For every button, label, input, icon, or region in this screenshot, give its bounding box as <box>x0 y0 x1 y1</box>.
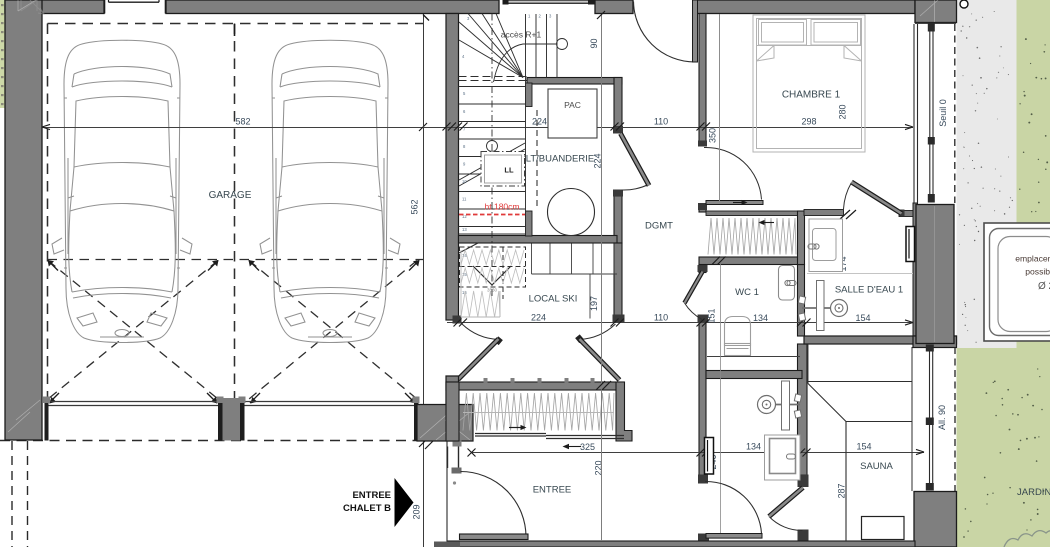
svg-text:accès R+1: accès R+1 <box>501 30 542 40</box>
svg-text:Seuil 0: Seuil 0 <box>938 99 948 127</box>
svg-text:All. 90: All. 90 <box>937 405 947 430</box>
svg-text:209: 209 <box>412 504 422 519</box>
svg-text:151: 151 <box>707 308 717 323</box>
svg-text:287: 287 <box>837 483 847 498</box>
svg-text:ENTREE: ENTREE <box>352 490 391 501</box>
svg-text:197: 197 <box>589 296 599 311</box>
svg-text:emplacement: emplacement <box>1015 254 1050 264</box>
svg-text:134: 134 <box>753 313 768 323</box>
svg-text:ht 180cm: ht 180cm <box>485 202 520 212</box>
svg-text:possible: possible <box>1025 267 1050 277</box>
svg-text:JARDIN: JARDIN <box>1017 487 1050 498</box>
svg-text:WC 1: WC 1 <box>735 287 759 298</box>
svg-text:PAC: PAC <box>564 100 581 110</box>
svg-text:280: 280 <box>838 104 848 119</box>
svg-text:CHALET B: CHALET B <box>343 503 391 514</box>
svg-text:13: 13 <box>462 227 467 232</box>
svg-text:DGMT: DGMT <box>645 221 673 232</box>
svg-text:110: 110 <box>654 117 668 127</box>
svg-text:CHAMBRE 1: CHAMBRE 1 <box>782 90 841 101</box>
svg-text:90: 90 <box>589 38 599 48</box>
svg-text:11: 11 <box>462 197 467 202</box>
svg-text:298: 298 <box>801 117 816 127</box>
svg-text:SALLE D'EAU 1: SALLE D'EAU 1 <box>835 285 903 296</box>
svg-text:LOCAL SKI: LOCAL SKI <box>529 294 578 305</box>
svg-text:562: 562 <box>410 199 420 214</box>
svg-text:10: 10 <box>462 179 467 184</box>
svg-text:SAUNA: SAUNA <box>860 461 893 472</box>
svg-text:154: 154 <box>855 313 870 323</box>
svg-text:350: 350 <box>708 128 718 143</box>
svg-text:325: 325 <box>580 442 595 452</box>
svg-text:224: 224 <box>532 117 547 127</box>
svg-text:3530: 3530 <box>487 288 498 293</box>
svg-text:224: 224 <box>531 313 546 323</box>
svg-text:LL: LL <box>504 166 514 175</box>
svg-text:110: 110 <box>654 313 668 323</box>
svg-text:ENTREE: ENTREE <box>533 485 572 496</box>
svg-text:582: 582 <box>235 117 250 127</box>
svg-text:Ø 2: Ø 2 <box>1038 281 1050 292</box>
svg-text:LT/BUANDERIE: LT/BUANDERIE <box>526 154 594 165</box>
svg-text:GARAGE: GARAGE <box>209 190 252 201</box>
svg-text:154: 154 <box>856 442 871 452</box>
svg-text:134: 134 <box>746 442 761 452</box>
